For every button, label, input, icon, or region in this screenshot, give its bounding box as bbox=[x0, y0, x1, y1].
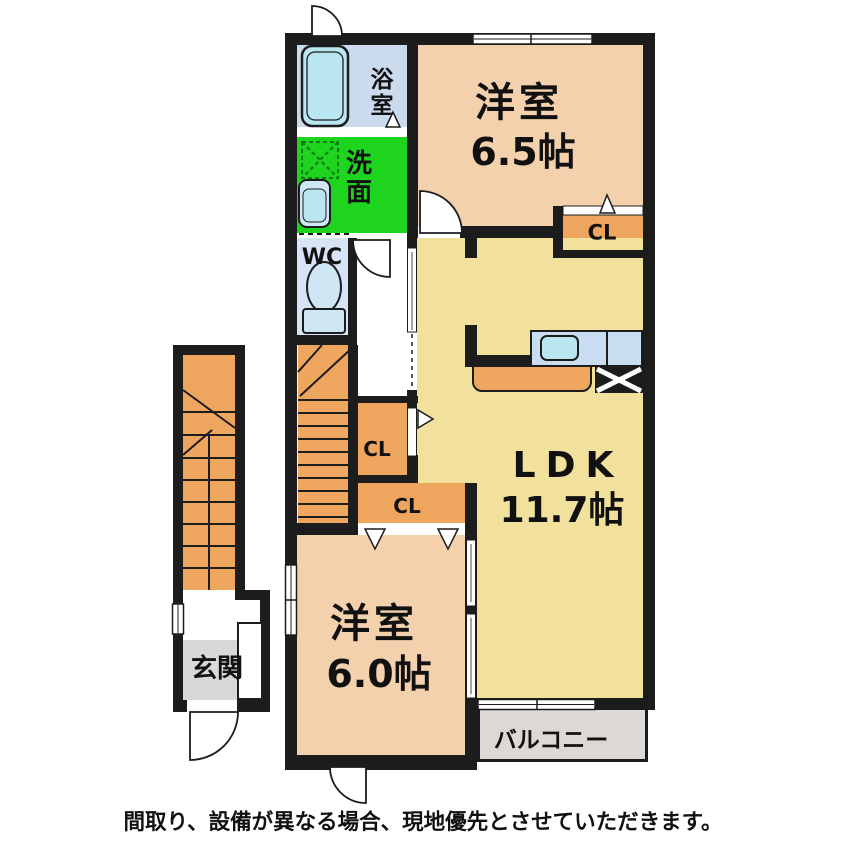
washroom-label: 洗面 bbox=[344, 150, 374, 208]
room65-size-label: 6.5帖 bbox=[470, 133, 575, 171]
wall-bath-room65 bbox=[407, 33, 418, 238]
entrance-label: 玄関 bbox=[191, 656, 243, 682]
wall-wc-bottom bbox=[285, 335, 357, 345]
hallway-floor bbox=[357, 238, 407, 396]
bathroom-door-track bbox=[297, 127, 407, 137]
door-exterior-bottom bbox=[330, 767, 366, 803]
closet-hall-label: CL bbox=[363, 439, 390, 459]
kitchen-counter bbox=[530, 330, 643, 367]
wc-label: WC bbox=[302, 247, 342, 269]
room60-size-label: 6.0帖 bbox=[326, 655, 431, 693]
western-room-65-door-gap bbox=[418, 226, 465, 238]
wall-closet65-bottom bbox=[553, 250, 655, 258]
wall-hall-ldk-a bbox=[407, 238, 417, 250]
ldk-name-label: LDK bbox=[513, 448, 624, 484]
wall-entry-right-upper bbox=[235, 345, 245, 600]
wall-top bbox=[285, 33, 655, 45]
wall-closet-hall-top bbox=[352, 396, 418, 403]
door-entrance bbox=[190, 712, 238, 760]
closet-room60-label: CL bbox=[393, 496, 420, 516]
balcony-label: バルコニー bbox=[494, 730, 609, 753]
wall-stairs-hall bbox=[348, 345, 358, 535]
wall-bottom-right bbox=[465, 698, 655, 710]
floor-plan: 洋室 6.5帖 LDK 11.7帖 洋室 6.0帖 浴室 洗面 WC 玄関 バル… bbox=[0, 0, 846, 846]
wall-closet-divider bbox=[352, 475, 418, 483]
bathroom-label: 浴室 bbox=[368, 68, 396, 120]
wall-room65-door-stub bbox=[465, 226, 477, 258]
wall-wc-right bbox=[348, 238, 357, 345]
wall-entry-connector bbox=[235, 590, 270, 600]
wall-stairs-bottom bbox=[285, 523, 358, 535]
wall-entry-bottom-a bbox=[173, 700, 187, 712]
stairs-left-floor bbox=[183, 355, 235, 590]
room60-name-label: 洋室 bbox=[330, 604, 418, 644]
wall-right bbox=[643, 33, 655, 710]
wall-entry-left bbox=[173, 345, 183, 712]
disclaimer-text: 間取り、設備が異なる場合、現地優先とさせていただきます。 bbox=[124, 805, 723, 836]
closet65-label: CL bbox=[588, 223, 617, 244]
hallway-opening bbox=[407, 238, 417, 398]
room65-name-label: 洋室 bbox=[475, 83, 563, 123]
wall-room60-ldk bbox=[465, 483, 477, 770]
wall-entry-bottom-b bbox=[237, 700, 270, 712]
dining-counter bbox=[472, 365, 592, 392]
wall-bottom-left bbox=[285, 755, 477, 770]
wall-left bbox=[285, 33, 297, 767]
ldk-size-label: 11.7帖 bbox=[500, 493, 625, 529]
closet-hall-door-track bbox=[408, 408, 417, 456]
stairs-middle-floor bbox=[298, 345, 352, 523]
door-exterior-top bbox=[312, 6, 342, 36]
closet-room60-door-track bbox=[358, 523, 468, 535]
refrigerator-space bbox=[595, 367, 643, 393]
